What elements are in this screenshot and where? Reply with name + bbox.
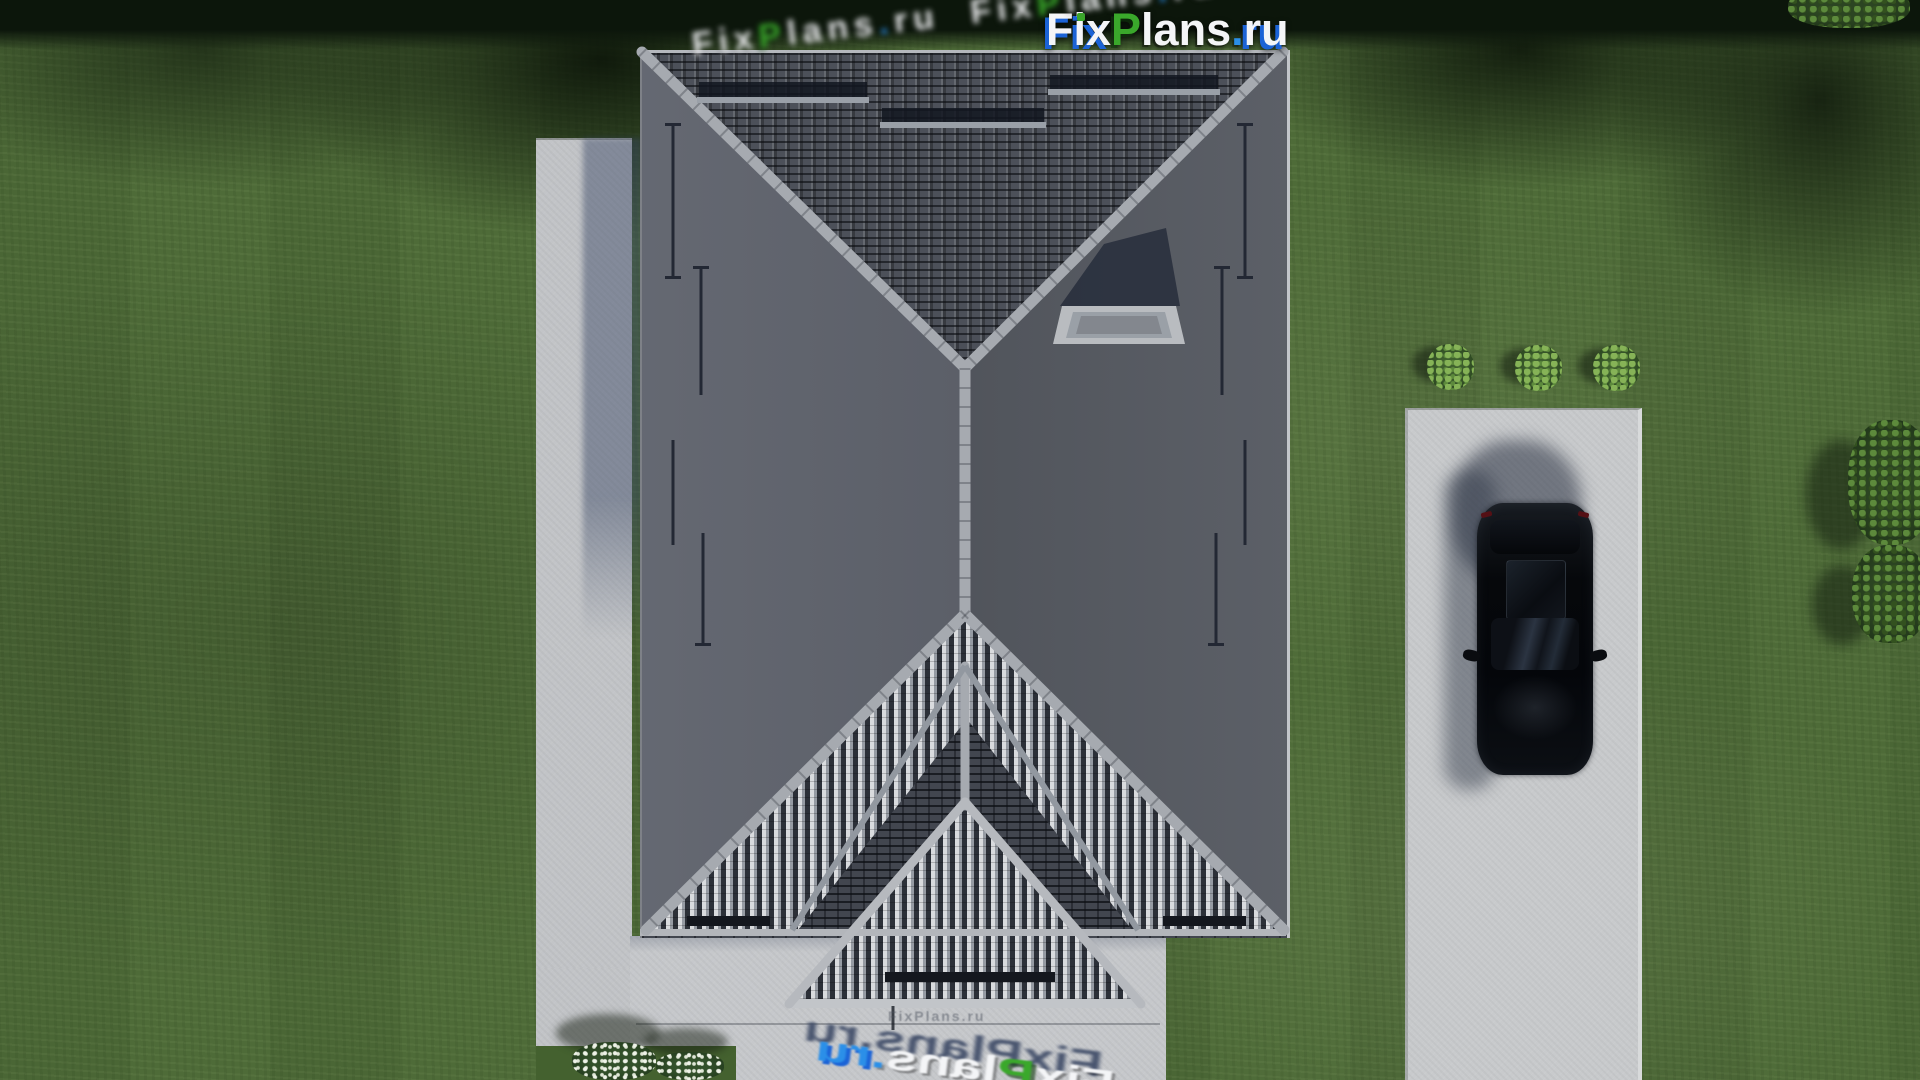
watermark-text: P	[756, 15, 789, 56]
watermark-text: P	[1035, 0, 1068, 24]
concrete-stamp-text: FixPlans.ru	[888, 1008, 985, 1024]
gable-eave-fascia	[787, 999, 1143, 1008]
roof-snow-guards	[697, 75, 1220, 128]
aerial-house-render: FixPlans.ru FixPlans.ru FixPlans.ru FixP…	[0, 0, 1920, 1080]
watermark-text: Fix	[690, 18, 761, 63]
chimney-shadow	[1060, 228, 1180, 306]
bush	[1427, 344, 1474, 390]
flower-bush	[572, 1042, 656, 1080]
logo-text-ru: ru	[1244, 4, 1289, 55]
roof-detail-overlay	[0, 0, 1920, 1080]
logo-text-lans: lans	[1141, 4, 1231, 55]
watermark-text: ru	[892, 0, 942, 41]
roof-line-ticks	[665, 123, 1253, 646]
bush	[1593, 345, 1640, 391]
eave-fascia-bottom	[640, 929, 1286, 936]
roof-vent-bars	[687, 916, 1246, 982]
roof-vertical-lines	[673, 125, 1245, 645]
chimney-cap-center	[1076, 316, 1162, 334]
logo-text-dot: .	[1231, 4, 1244, 55]
tree	[1848, 420, 1920, 545]
bush	[1515, 345, 1562, 391]
tree	[1852, 545, 1920, 643]
